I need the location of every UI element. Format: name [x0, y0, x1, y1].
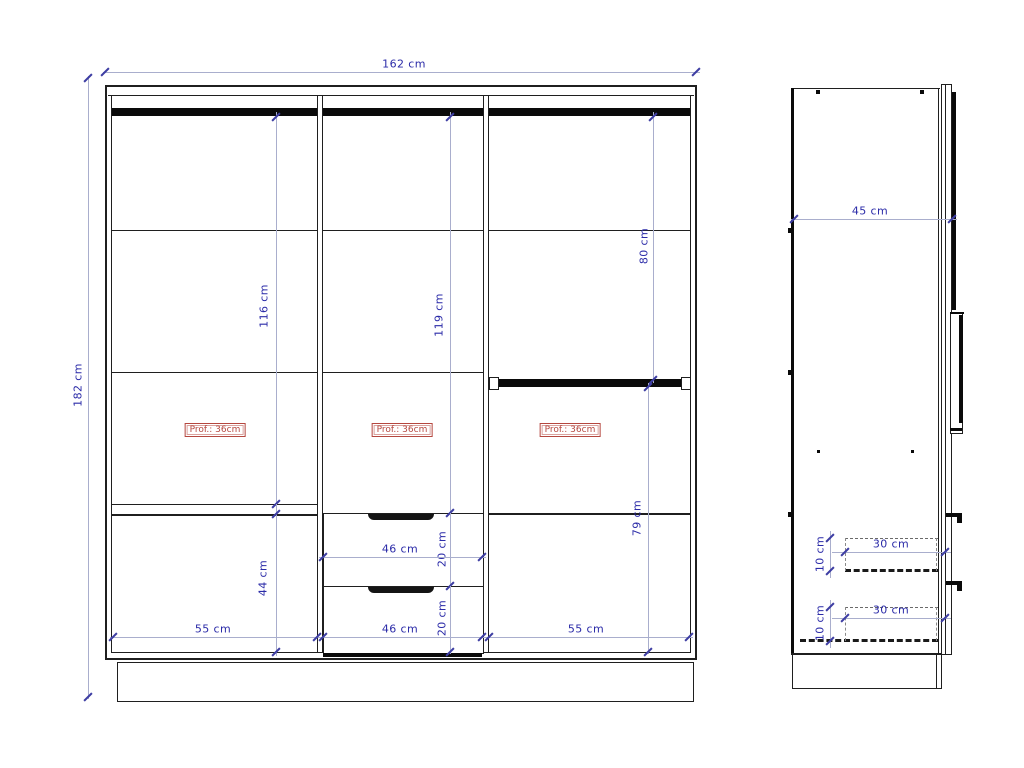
drawer-bottom-height-dim: 20 cm [436, 600, 449, 636]
dimension-line [791, 219, 957, 220]
dimension-line [276, 504, 277, 656]
hanging-rail-right-lower [497, 379, 682, 387]
dimension-line [450, 586, 451, 654]
shelf-pin-mark [788, 228, 791, 233]
door-handle-foot [950, 428, 962, 431]
drawer-handle-side-bottom [957, 581, 962, 591]
drawer-base-strip [323, 653, 482, 657]
drawer-front-bottom [323, 586, 484, 654]
right-lower-height-dim: 79 cm [631, 500, 644, 536]
door-panel-line [941, 84, 942, 655]
dimension-line [88, 76, 89, 699]
front-bottom-outer-edge [105, 658, 697, 660]
drawer-bottom-depth-dim: 30 cm [873, 604, 909, 617]
shelf-line [322, 230, 483, 231]
shelf-pin-mark [788, 370, 791, 375]
fitting-dot [816, 90, 820, 94]
right-upper-height-dim: 80 cm [638, 228, 651, 264]
dimension-line [276, 112, 277, 504]
drawer-bottom-side-height-dim: 10 cm [814, 605, 827, 641]
dimension-line [450, 112, 451, 513]
right-width-dim: 55 cm [568, 623, 604, 636]
drawer-handle-recess-top [368, 514, 434, 520]
door-panel-line [945, 84, 946, 655]
shelf-pin-mark [788, 512, 791, 517]
drawer-top-side-height-dim: 10 cm [814, 536, 827, 572]
hidden-drawer-back-line [845, 538, 846, 571]
side-bottom-edge [791, 653, 941, 655]
side-plinth-bottom [792, 688, 942, 689]
front-left-outer-wall [105, 85, 107, 660]
drawer-bottom-width-dim: 46 cm [382, 623, 418, 636]
middle-interior-height-dim: 119 cm [433, 293, 446, 337]
dimension-tick [83, 692, 92, 701]
shelf-line [488, 230, 690, 231]
front-right-outer-wall [695, 85, 697, 660]
door-handle-edge [959, 315, 963, 423]
hidden-drawer-front-line [936, 607, 937, 641]
front-top-inner-edge [108, 95, 694, 96]
drawer-handle-side-top [957, 513, 962, 523]
side-plinth-right [936, 654, 937, 689]
dimension-line [110, 637, 322, 638]
door-panel-top [941, 84, 952, 85]
door-handle-cap [950, 312, 964, 314]
front-right-inner-wall [690, 95, 691, 653]
divider-right-b [488, 95, 489, 653]
hanging-rail-middle [323, 108, 483, 116]
hidden-drawer-bottom-line [845, 569, 938, 572]
depth-badge-left: Prof.: 36cm [185, 423, 246, 437]
dimension-line [485, 637, 693, 638]
divider-left-a [317, 95, 318, 653]
front-left-inner-wall [111, 95, 112, 653]
wardrobe-technical-drawing: 162 cm 182 cm 116 cm 44 cm 55 cm 119 cm … [0, 0, 1024, 768]
side-depth-dim: 45 cm [852, 205, 888, 218]
fitting-dot [920, 90, 924, 94]
drawer-handle-recess-bottom [368, 587, 434, 593]
shelf-line [112, 372, 317, 373]
fitting-dot [817, 450, 820, 453]
shelf-line [112, 514, 317, 516]
dimension-line [319, 557, 486, 558]
dimension-line [648, 383, 649, 654]
shelf-line [322, 372, 483, 373]
left-interior-height-dim: 116 cm [258, 284, 271, 328]
side-back-wall [791, 88, 794, 654]
front-plinth [117, 662, 694, 702]
front-total-height-dim: 182 cm [72, 363, 85, 407]
hidden-drawer-back-line [845, 607, 846, 641]
shelf-line [112, 504, 317, 505]
dimension-line [103, 72, 700, 73]
drawer-top-width-dim: 46 cm [382, 543, 418, 556]
left-width-dim: 55 cm [195, 623, 231, 636]
side-top-edge [793, 88, 940, 89]
left-bottom-height-dim: 44 cm [257, 560, 270, 596]
rail-bracket-right [681, 377, 691, 390]
front-total-width-dim: 162 cm [382, 58, 426, 71]
drawer-top-depth-dim: 30 cm [873, 538, 909, 551]
dimension-line [832, 552, 951, 553]
hanging-rail-left [112, 108, 317, 116]
hidden-drawer-front-line [936, 538, 937, 571]
dimension-line [832, 618, 951, 619]
door-panel-bottom [941, 654, 952, 655]
depth-badge-middle: Prof.: 36cm [372, 423, 433, 437]
side-plinth-left [792, 654, 793, 689]
dimension-line [653, 112, 654, 383]
side-front-inner-line [938, 88, 939, 653]
shelf-line [112, 230, 317, 231]
door-edge-strip [952, 92, 956, 310]
hanging-rail-right-upper [489, 108, 690, 116]
dimension-line [319, 637, 486, 638]
fitting-dot [911, 450, 914, 453]
side-plinth-right-outer [941, 654, 942, 689]
rail-bracket-left [489, 377, 499, 390]
drawer-top-height-dim: 20 cm [436, 531, 449, 567]
front-top-outer-edge [105, 85, 697, 87]
dimension-line [450, 513, 451, 586]
depth-badge-right: Prof.: 36cm [540, 423, 601, 437]
shelf-line [488, 513, 690, 515]
